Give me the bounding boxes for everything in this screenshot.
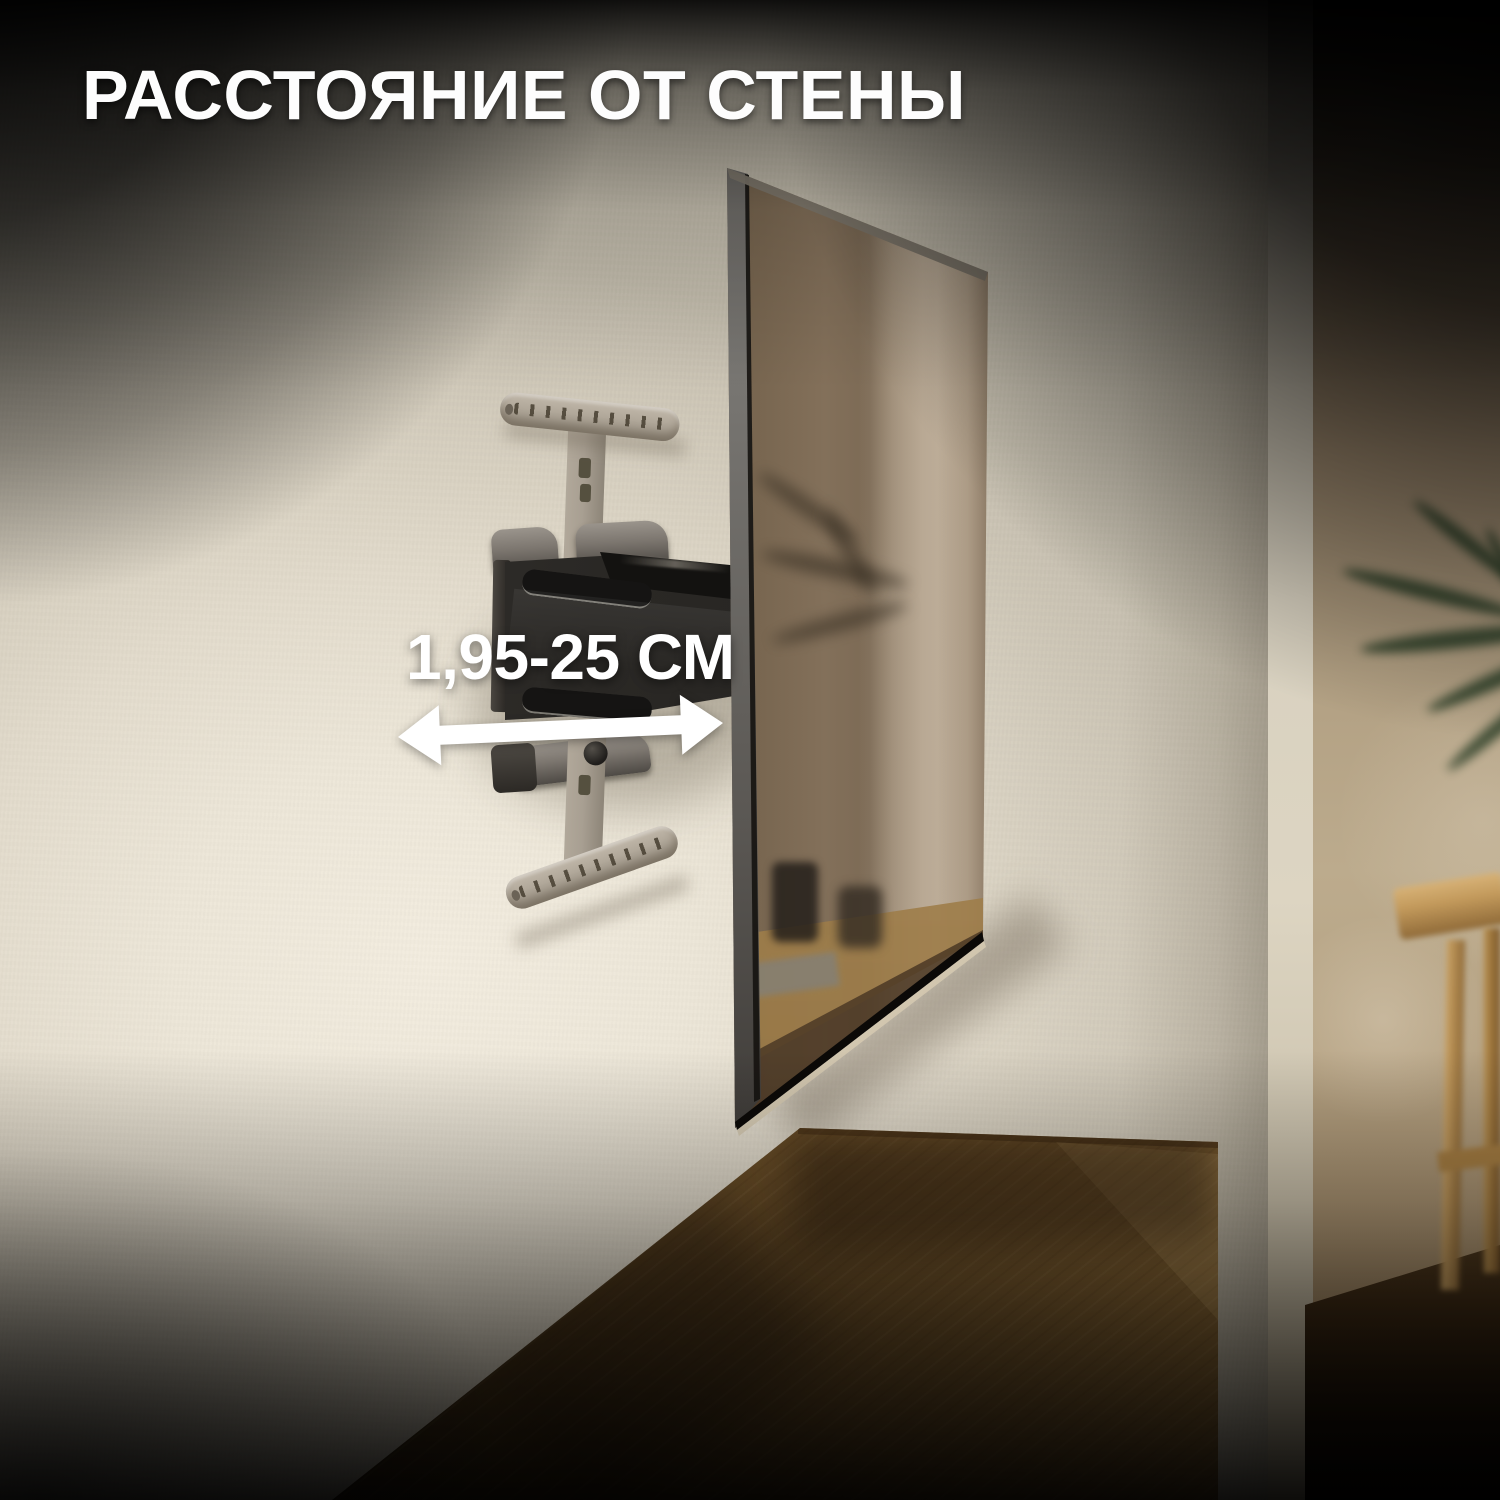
double-arrow-icon	[388, 690, 733, 782]
double-arrow-shape	[398, 695, 723, 765]
page-title: РАССТОЯНИЕ ОТ СТЕНЫ	[82, 60, 1182, 150]
screen-reflection-object	[772, 862, 818, 942]
vesa-end-hole	[505, 403, 514, 415]
rail-slot	[578, 458, 591, 478]
product-infographic: РАССТОЯНИЕ ОТ СТЕНЫ 1,95-25 СМ	[0, 0, 1500, 1500]
stool-leg	[1484, 928, 1500, 1273]
distance-value-label: 1,95-25 СМ	[406, 625, 826, 697]
vesa-holes	[514, 402, 670, 430]
screen-reflection-object	[838, 886, 882, 948]
rail-slot	[580, 484, 592, 502]
